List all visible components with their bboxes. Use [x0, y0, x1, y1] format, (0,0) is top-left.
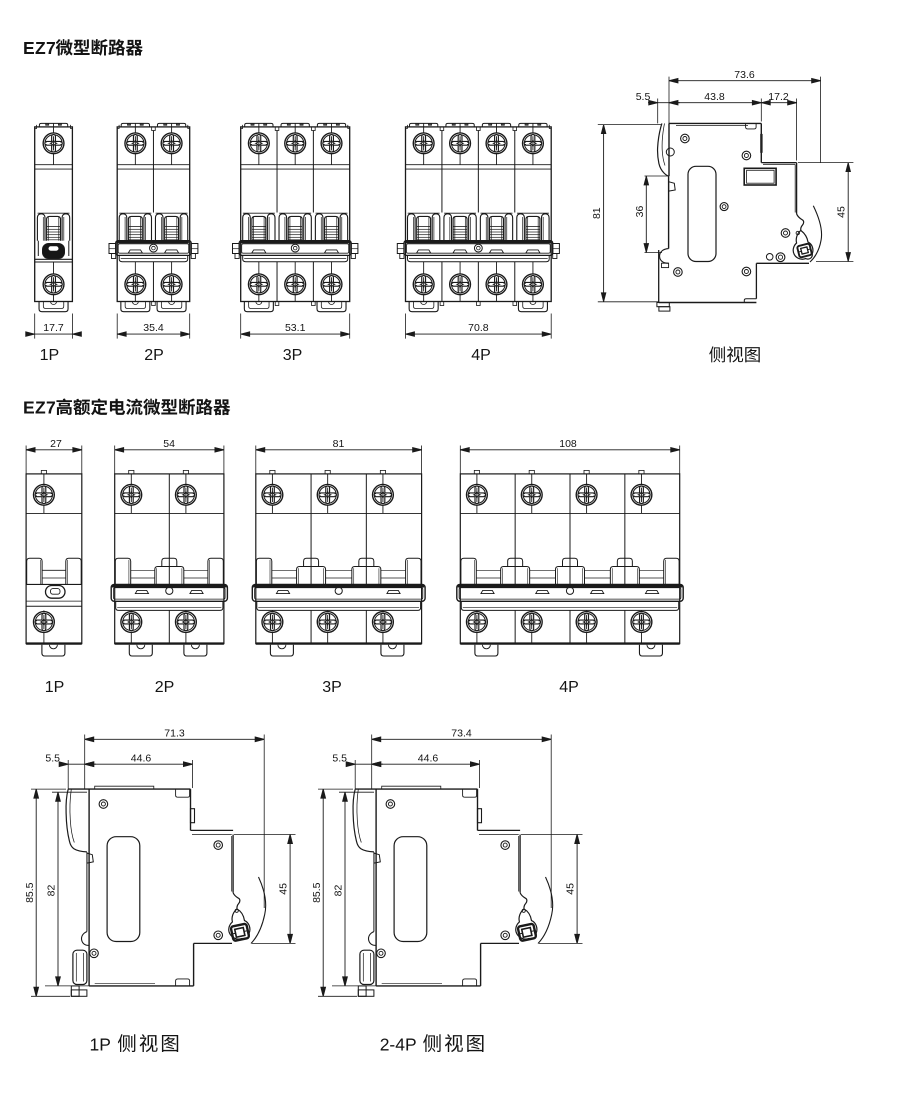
svg-text:82: 82	[46, 885, 58, 897]
svg-text:2-4P: 2-4P	[380, 1035, 417, 1055]
svg-text:5.5: 5.5	[636, 91, 651, 103]
svg-text:27: 27	[50, 438, 62, 450]
svg-text:2P: 2P	[144, 347, 164, 364]
svg-text:45: 45	[836, 206, 848, 218]
svg-text:35.4: 35.4	[143, 322, 164, 334]
svg-text:81: 81	[333, 438, 345, 450]
svg-text:70.8: 70.8	[468, 322, 489, 334]
svg-text:54: 54	[163, 438, 175, 450]
svg-text:3P: 3P	[322, 679, 342, 696]
svg-text:71.3: 71.3	[164, 728, 185, 740]
svg-text:4P: 4P	[471, 347, 491, 364]
svg-text:4P: 4P	[559, 679, 579, 696]
svg-text:45: 45	[278, 883, 290, 895]
svg-text:EZ7: EZ7	[23, 38, 56, 58]
svg-text:36: 36	[634, 206, 646, 218]
svg-text:43.8: 43.8	[704, 91, 725, 103]
svg-text:73.4: 73.4	[451, 728, 472, 740]
svg-text:1P: 1P	[40, 347, 60, 364]
svg-text:44.6: 44.6	[131, 753, 152, 765]
svg-text:85.5: 85.5	[24, 882, 36, 903]
svg-text:2P: 2P	[155, 679, 175, 696]
svg-text:5.5: 5.5	[45, 753, 60, 765]
svg-text:1P: 1P	[90, 1035, 111, 1055]
svg-text:81: 81	[591, 207, 603, 219]
svg-text:17.2: 17.2	[768, 91, 789, 103]
svg-text:EZ7: EZ7	[23, 398, 56, 418]
svg-text:73.6: 73.6	[734, 69, 755, 81]
svg-text:17.7: 17.7	[43, 322, 64, 334]
svg-text:1P: 1P	[45, 679, 65, 696]
svg-text:53.1: 53.1	[285, 322, 306, 334]
svg-text:3P: 3P	[283, 347, 303, 364]
svg-text:108: 108	[559, 438, 577, 450]
